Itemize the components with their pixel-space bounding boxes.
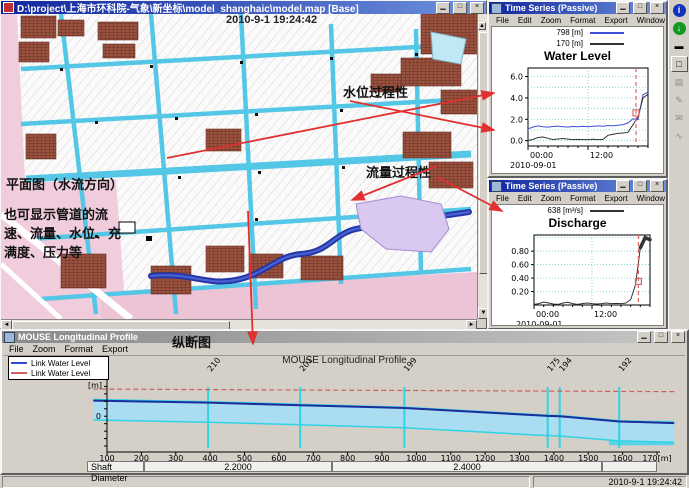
- svg-text:0.0: 0.0: [510, 137, 523, 146]
- legend-value: 798 [m]: [531, 28, 583, 37]
- close-icon[interactable]: ×: [650, 180, 664, 192]
- discharge-window: Time Series (Passive) ▁ □ × File Edit Zo…: [487, 178, 668, 330]
- maximize-icon[interactable]: □: [453, 2, 467, 14]
- legend-line-sample: [590, 32, 624, 34]
- info-icon: i: [673, 4, 686, 17]
- map-window-titlebar[interactable]: D:\project\上海市环科院-气象\新坐标\model_shanghaic…: [1, 1, 486, 14]
- map-window-title: D:\project\上海市环科院-气象\新坐标\model_shanghaic…: [17, 1, 433, 14]
- shaft-value-cell: 2.2000: [144, 461, 332, 472]
- menu-file[interactable]: File: [496, 194, 509, 203]
- shaft-empty-cell: [602, 461, 657, 472]
- info-button[interactable]: i: [671, 2, 688, 18]
- svg-text:2010-09-01: 2010-09-01: [516, 320, 563, 326]
- legend-line-sample: [590, 210, 624, 212]
- ts1-title: Time Series (Passive): [505, 3, 613, 13]
- shaft-label-cell: Shaft Diameter: [87, 461, 144, 472]
- legend-row: 170 [m]: [492, 38, 663, 49]
- menu-edit[interactable]: Edit: [518, 16, 532, 25]
- edit-icon: ✎: [675, 95, 683, 106]
- profile-window: MOUSE Longitudinal Profile ▁ □ × File Zo…: [0, 329, 689, 475]
- shaft-value-cell: 2.4000: [332, 461, 602, 472]
- maximize-icon[interactable]: □: [654, 331, 668, 343]
- svg-text:0: 0: [96, 412, 101, 421]
- svg-text:0.20: 0.20: [511, 288, 529, 297]
- water-level-window: Time Series (Passive) ▁ □ × File Edit Zo…: [487, 0, 668, 178]
- plan-view-annotation: 平面图（水流方向）: [6, 176, 123, 195]
- svg-text:0.40: 0.40: [511, 274, 529, 283]
- discharge-annotation: 流量过程性: [366, 164, 431, 183]
- menu-format[interactable]: Format: [65, 344, 94, 354]
- svg-text:2.0: 2.0: [510, 115, 523, 124]
- menu-file[interactable]: File: [9, 344, 24, 354]
- menu-export[interactable]: Export: [102, 344, 128, 354]
- ok-button[interactable]: ↓: [671, 20, 688, 36]
- ts2-content: 638 [m³/s] Discharge 0.200.400.600.8000:…: [491, 204, 664, 326]
- chart-title: Water Level: [492, 49, 663, 64]
- page-button[interactable]: ▤: [671, 74, 688, 90]
- profile-annotation: 纵断图: [172, 334, 211, 353]
- minimize-icon[interactable]: ▁: [616, 180, 630, 192]
- chat-button[interactable]: ✉: [671, 110, 688, 126]
- discharge-chart: 0.200.400.600.8000:0012:002010-09-01: [492, 231, 664, 326]
- menu-format[interactable]: Format: [570, 16, 595, 25]
- svg-text:12:00: 12:00: [594, 310, 617, 319]
- svg-text:4.0: 4.0: [510, 94, 523, 103]
- profile-window-title: MOUSE Longitudinal Profile: [18, 332, 634, 342]
- legend-value: 638 [m³/s]: [531, 206, 583, 215]
- ts1-titlebar[interactable]: Time Series (Passive) ▁ □ ×: [489, 2, 666, 14]
- legend-row: Link Water Level: [11, 358, 106, 368]
- svg-text:0.60: 0.60: [511, 261, 529, 270]
- profile-legend: Link Water Level Link Water Level: [8, 356, 109, 380]
- legend-label: Link Water Level: [31, 359, 90, 368]
- profile-app-icon: [4, 332, 15, 343]
- legend-row: 638 [m³/s]: [492, 205, 663, 216]
- menu-zoom[interactable]: Zoom: [541, 194, 561, 203]
- water-level-annotation: 水位过程性: [343, 84, 408, 103]
- minimize-icon[interactable]: ▁: [637, 331, 651, 343]
- water-level-chart: 0.02.04.06.000:0012:002010-09-01: [492, 64, 664, 172]
- chart-button[interactable]: ∿: [671, 128, 688, 144]
- svg-text:6.0: 6.0: [510, 73, 523, 82]
- menu-zoom[interactable]: Zoom: [541, 16, 561, 25]
- chart-icon: ∿: [675, 131, 683, 142]
- menu-edit[interactable]: Edit: [518, 194, 532, 203]
- map-app-icon: [3, 2, 14, 13]
- plan-view-note: 也可显示管道的流速、流量、水位、充满度、压力等: [4, 206, 126, 263]
- ts2-titlebar[interactable]: Time Series (Passive) ▁ □ ×: [489, 180, 666, 192]
- maximize-icon[interactable]: □: [633, 2, 647, 14]
- menu-zoom[interactable]: Zoom: [33, 344, 56, 354]
- ok-icon: ↓: [673, 22, 686, 35]
- minimize-icon[interactable]: ▁: [616, 2, 630, 14]
- edit-button[interactable]: ✎: [671, 92, 688, 108]
- svg-text:00:00: 00:00: [536, 310, 559, 319]
- menu-window[interactable]: Window: [637, 194, 665, 203]
- legend-label: Link Water Level: [31, 369, 90, 378]
- side-toolbar: i ↓ ▬ □ ▤ ✎ ✉ ∿: [668, 0, 689, 329]
- profile-titlebar[interactable]: MOUSE Longitudinal Profile ▁ □ ×: [2, 331, 687, 343]
- chat-icon: ✉: [675, 113, 683, 124]
- ts2-app-icon: [491, 181, 502, 192]
- ts1-content: 798 [m] 170 [m] Water Level 0.02.04.06.0…: [491, 26, 664, 174]
- svg-text:00:00: 00:00: [530, 151, 553, 160]
- maximize-icon[interactable]: □: [633, 180, 647, 192]
- close-icon[interactable]: ×: [671, 331, 685, 343]
- status-timestamp: 2010-9-1 19:24:42: [533, 476, 687, 488]
- window-button[interactable]: □: [671, 56, 688, 72]
- legend-row: Link Water Level: [11, 368, 106, 378]
- svg-text:0.80: 0.80: [511, 247, 529, 256]
- scroll-up-icon[interactable]: ▲: [478, 22, 486, 30]
- menu-format[interactable]: Format: [570, 194, 595, 203]
- shaft-diameter-table: Shaft Diameter 2.2000 2.4000: [87, 461, 657, 472]
- ts2-title: Time Series (Passive): [505, 181, 613, 191]
- application-desktop: D:\project\上海市环科院-气象\新坐标\model_shanghaic…: [0, 0, 689, 488]
- legend-value: 170 [m]: [531, 39, 583, 48]
- dash-icon: ▬: [671, 38, 688, 54]
- legend-line-sample: [590, 43, 624, 45]
- legend-line-sample: [11, 362, 27, 364]
- menu-window[interactable]: Window: [637, 16, 665, 25]
- close-icon[interactable]: ×: [470, 2, 484, 14]
- map-timestamp: 2010-9-1 19:24:42: [226, 14, 317, 26]
- menu-export[interactable]: Export: [604, 16, 627, 25]
- legend-row: 798 [m]: [492, 27, 663, 38]
- close-icon[interactable]: ×: [650, 2, 664, 14]
- legend-line-sample: [11, 372, 27, 374]
- menu-file[interactable]: File: [496, 16, 509, 25]
- menu-export[interactable]: Export: [604, 194, 627, 203]
- ts1-app-icon: [491, 3, 502, 14]
- svg-text:12:00: 12:00: [590, 151, 613, 160]
- chart-title: Discharge: [492, 216, 663, 231]
- minimize-icon[interactable]: ▁: [436, 2, 450, 14]
- status-cell: [2, 476, 530, 488]
- svg-text:[m]: [m]: [88, 381, 102, 390]
- window-icon: □: [676, 59, 681, 69]
- page-icon: ▤: [675, 77, 684, 88]
- svg-text:2010-09-01: 2010-09-01: [510, 161, 557, 170]
